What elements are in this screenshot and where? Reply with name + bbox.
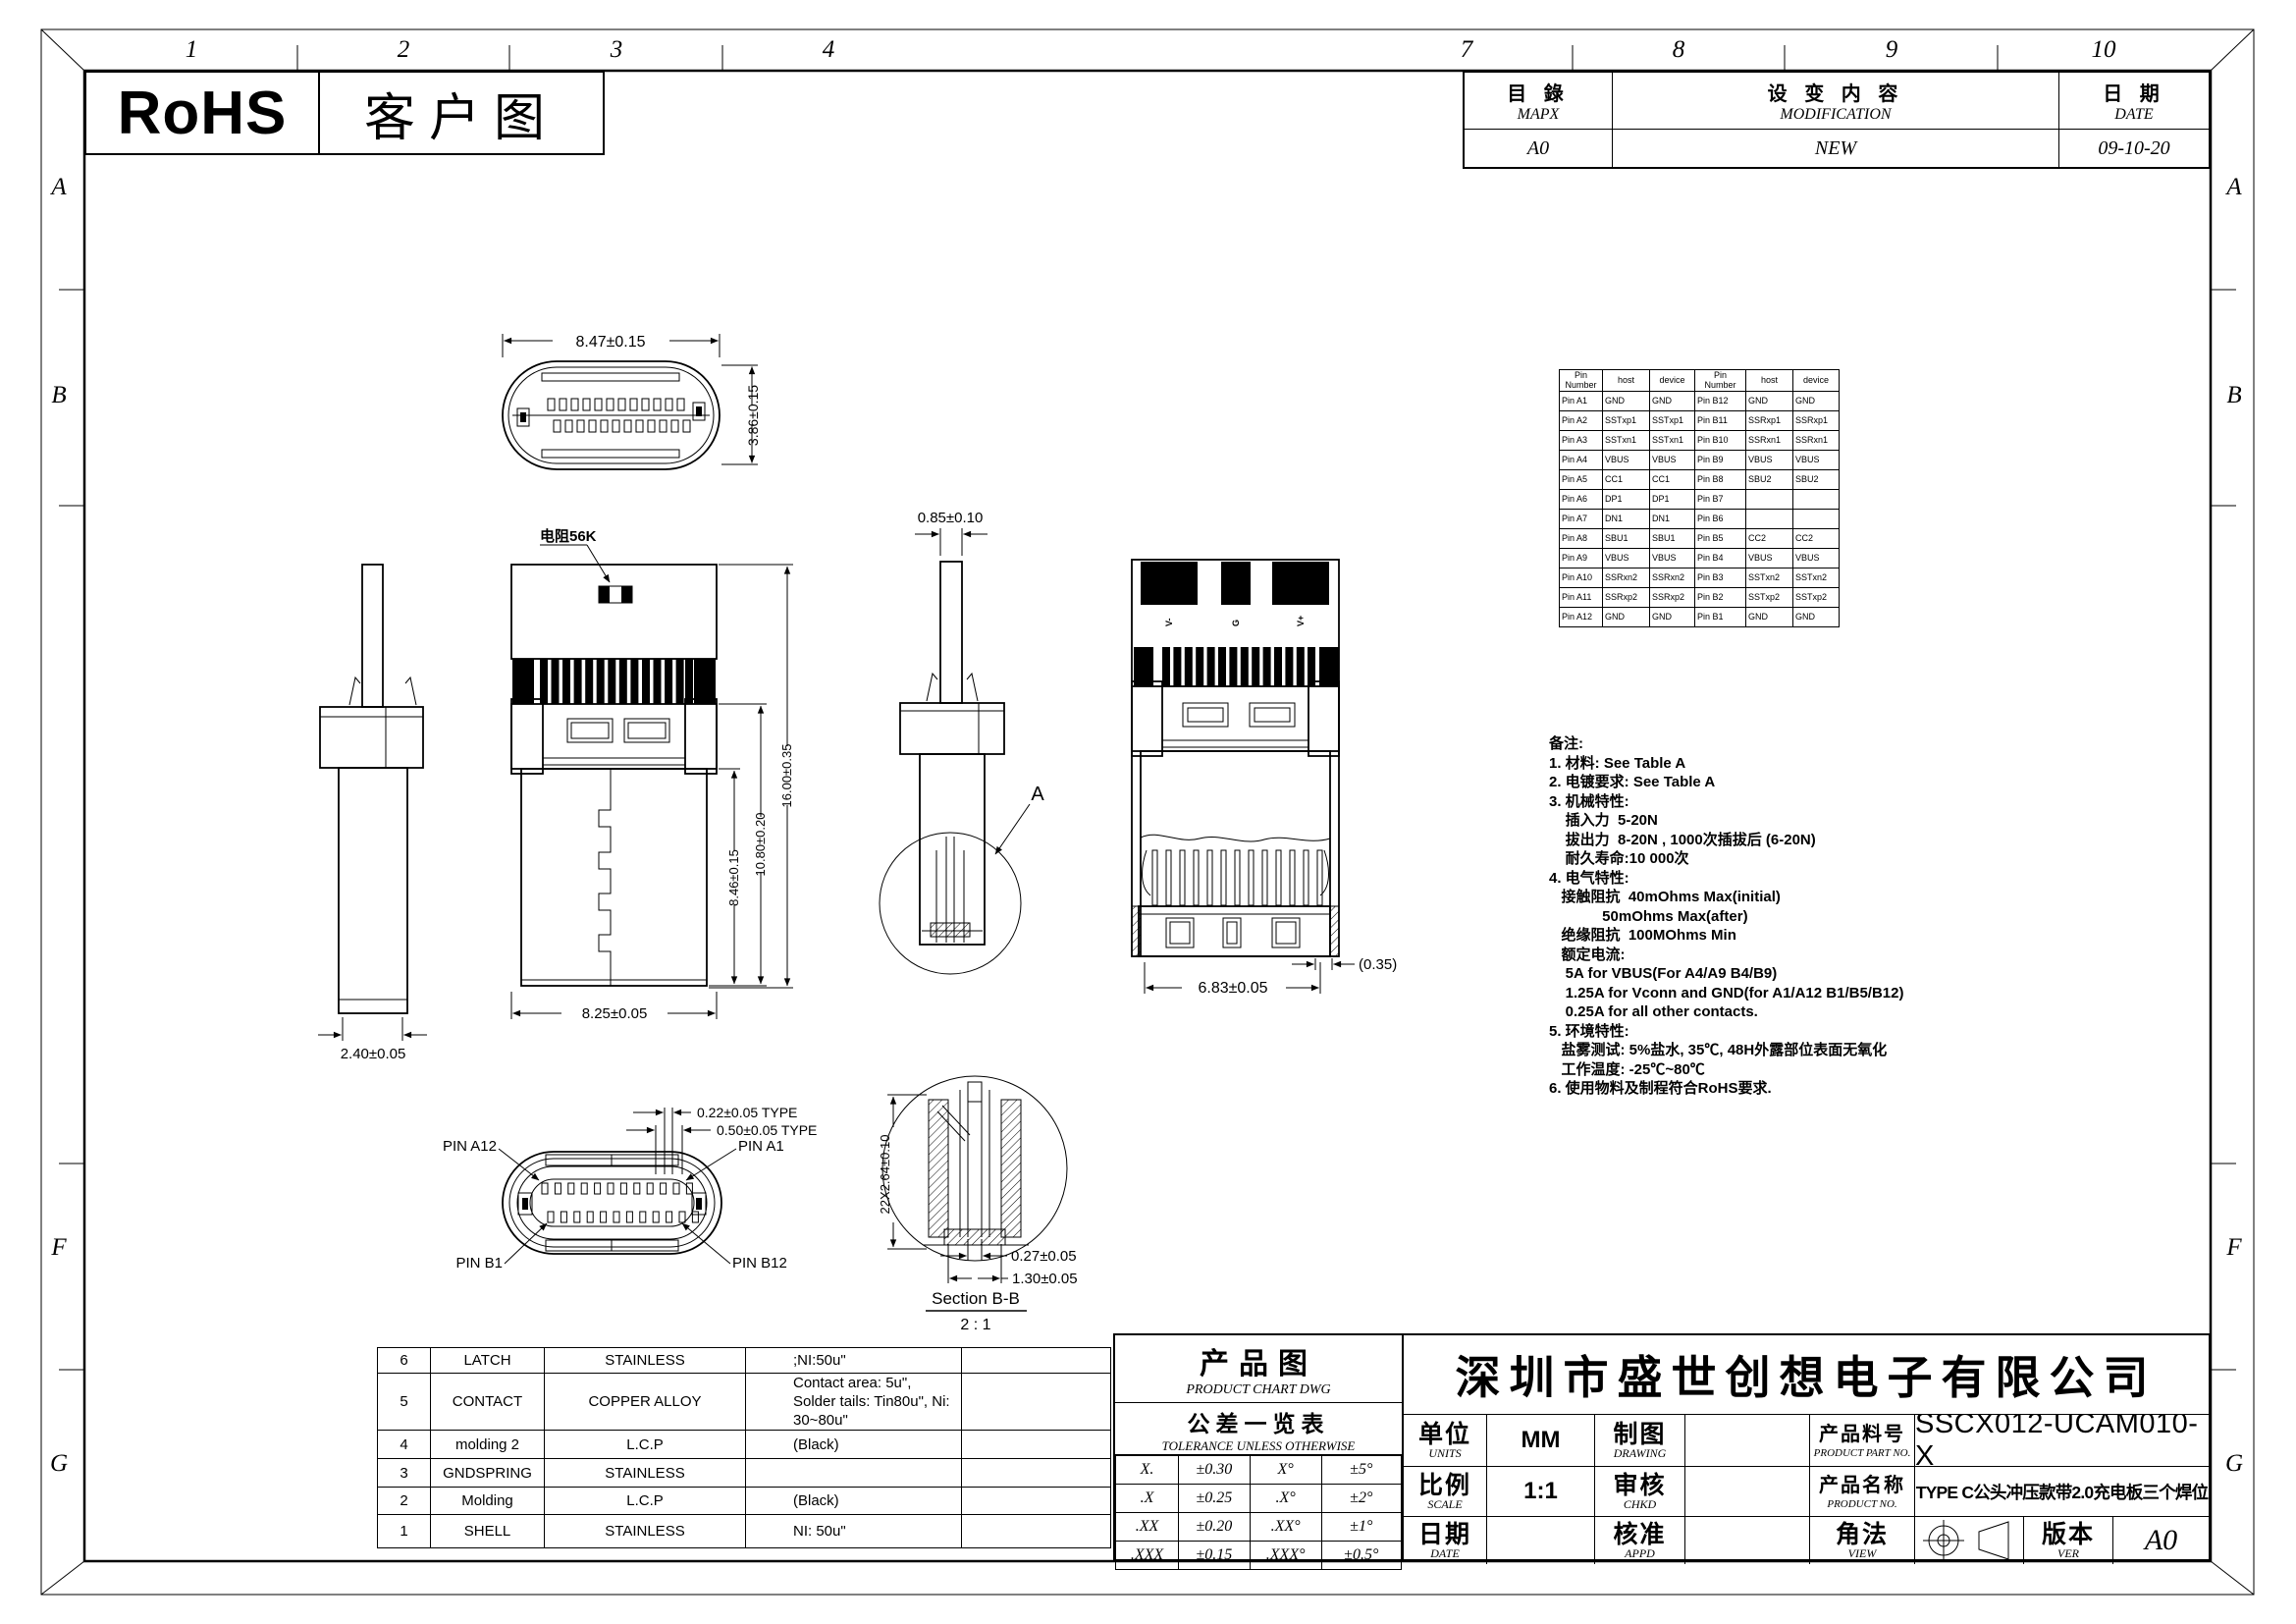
- table-cell: DN1: [1650, 510, 1695, 529]
- pin-assignment-table: Pin Number host device Pin Number host d…: [1559, 369, 1840, 627]
- table-cell: [746, 1459, 962, 1488]
- title-cn: 公差一览表: [1115, 1403, 1402, 1438]
- zone-letter: B: [43, 381, 75, 410]
- zone-letter: G: [2218, 1449, 2250, 1479]
- table-cell: Pin B1: [1695, 608, 1746, 627]
- pin-row-b: [548, 1212, 698, 1222]
- table-row: 1SHELLSTAINLESSNI: 50u": [378, 1515, 1111, 1548]
- pad-label: G: [1231, 620, 1241, 626]
- notes-block: 备注:1. 材料: See Table A2. 电镀要求: See Table …: [1549, 734, 2059, 1099]
- front-view: 电阻56K: [511, 527, 794, 1022]
- table-cell: ±0.25: [1179, 1485, 1251, 1513]
- table-cell: ±0.5°: [1321, 1542, 1401, 1570]
- table-cell: Pin A11: [1560, 588, 1603, 608]
- revision-col-mapx: 目 錄 MAPX: [1465, 73, 1613, 129]
- table-row: 5CONTACTCOPPER ALLOYContact area: 5u", S…: [378, 1374, 1111, 1431]
- label-en: PRODUCT PART NO.: [1814, 1447, 1911, 1460]
- table-cell: 3: [378, 1459, 431, 1488]
- table-cell: ;NI:50u": [746, 1348, 962, 1374]
- table-cell: SSRxp2: [1650, 588, 1695, 608]
- note-line: 接触阻抗 40mOhms Max(initial): [1549, 888, 2059, 907]
- break-line: [1141, 835, 1330, 841]
- table-cell: [962, 1459, 1111, 1488]
- table-cell: Contact area: 5u", Solder tails: Tin80u"…: [746, 1374, 962, 1431]
- third-angle-projection-icon: [1918, 1519, 2020, 1562]
- table-row: 4molding 2L.C.P(Black): [378, 1431, 1111, 1459]
- table-cell: SSTxn2: [1746, 568, 1793, 588]
- zone-number: 9: [1872, 35, 1911, 65]
- title-en: TOLERANCE UNLESS OTHERWISE: [1115, 1438, 1402, 1454]
- product-name-label: 产品名称 PRODUCT NO.: [1810, 1467, 1915, 1516]
- table-cell: SSRxn2: [1603, 568, 1650, 588]
- table-cell: SBU1: [1650, 529, 1695, 549]
- table-cell: GND: [1650, 608, 1695, 627]
- table-cell: molding 2: [431, 1431, 545, 1459]
- table-cell: 2: [378, 1488, 431, 1515]
- label-en: UNITS: [1428, 1447, 1461, 1460]
- label-en: VIEW: [1848, 1547, 1877, 1560]
- note-line: 5. 环境特性:: [1549, 1022, 2059, 1042]
- zone-letter: G: [43, 1449, 75, 1479]
- solder-pad: [1221, 562, 1251, 605]
- table-cell: [1793, 490, 1840, 510]
- pin-callout: PIN A12: [443, 1138, 497, 1155]
- table-row: 3GNDSPRINGSTAINLESS: [378, 1459, 1111, 1488]
- bom-table: 6LATCHSTAINLESS;NI:50u"5CONTACTCOPPER AL…: [377, 1347, 1111, 1548]
- note-line: 1. 材料: See Table A: [1549, 754, 2059, 774]
- zone-number: 10: [2084, 35, 2123, 65]
- table-cell: SBU2: [1793, 470, 1840, 490]
- table-cell: ±0.20: [1179, 1513, 1251, 1542]
- label-cn: 审核: [1613, 1473, 1666, 1498]
- table-cell: SSTxn1: [1650, 431, 1695, 451]
- table-cell: SSTxp1: [1603, 411, 1650, 431]
- section-bb-view: 22X2.64±0.10 0.27±0.05 1.30±0.05 Section…: [878, 1076, 1078, 1333]
- zone-letter: B: [2218, 381, 2250, 410]
- label-en: PRODUCT NO.: [1827, 1498, 1896, 1511]
- side-view-left: 2.40±0.05: [318, 565, 427, 1062]
- product-chart-title: 产品图 PRODUCT CHART DWG: [1115, 1335, 1402, 1403]
- table-cell: CC1: [1603, 470, 1650, 490]
- zone-number: 4: [809, 35, 848, 65]
- table-cell: 5: [378, 1374, 431, 1431]
- zone-letter: A: [2218, 173, 2250, 202]
- pin-row-a: [548, 399, 684, 410]
- pin-callout: PIN B12: [732, 1255, 787, 1272]
- dim-text: 0.22±0.05 TYPE: [697, 1105, 797, 1120]
- label-cn: 制图: [1613, 1422, 1666, 1447]
- revision-table: 目 錄 MAPX 设 变 内 容 MODIFICATION 日 期 DATE A…: [1463, 71, 2211, 169]
- dim-thickness: [318, 1017, 427, 1041]
- product-chart-block: 产品图 PRODUCT CHART DWG 公差一览表 TOLERANCE UN…: [1113, 1333, 1404, 1561]
- table-cell: ±0.15: [1179, 1542, 1251, 1570]
- value: MM: [1522, 1427, 1561, 1454]
- label-cn: 产品料号: [1819, 1422, 1905, 1447]
- ver-label: 版本 VER: [2024, 1517, 2113, 1564]
- table-cell: [962, 1515, 1111, 1548]
- side-view-right: 0.85±0.10 A: [880, 510, 1044, 974]
- zone-letter: F: [2218, 1233, 2250, 1263]
- zone-number: 8: [1659, 35, 1698, 65]
- view-label: 角法 VIEW: [1810, 1517, 1915, 1564]
- zone-number: 1: [172, 35, 211, 65]
- table-row: Pin A1GNDGNDPin B12GNDGND: [1560, 392, 1840, 411]
- table-cell: CC2: [1746, 529, 1793, 549]
- pin-callout: PIN B1: [455, 1255, 503, 1272]
- table-cell: GND: [1746, 608, 1793, 627]
- table-cell: STAINLESS: [545, 1348, 746, 1374]
- table-cell: VBUS: [1793, 451, 1840, 470]
- table-cell: [1746, 510, 1793, 529]
- table-cell: [1746, 490, 1793, 510]
- pad-label: V-: [1164, 618, 1174, 626]
- table-cell: Pin A10: [1560, 568, 1603, 588]
- scale-label: 比例 SCALE: [1404, 1467, 1487, 1516]
- company-name: 深圳市盛世创想电子有限公司: [1404, 1335, 2209, 1415]
- dim-text: 8.25±0.05: [582, 1005, 648, 1022]
- revision-header-row: 目 錄 MAPX 设 变 内 容 MODIFICATION 日 期 DATE: [1465, 73, 2209, 130]
- label-cn: 日 期: [2103, 78, 2165, 106]
- col-header: device: [1793, 370, 1840, 392]
- zone-number: 7: [1447, 35, 1486, 65]
- tolerance-table: X.±0.30X°±5°.X±0.25.X°±2°.XX±0.20.XX°±1°…: [1115, 1455, 1402, 1570]
- note-line: 插入力 5-20N: [1549, 811, 2059, 831]
- table-cell: 6: [378, 1348, 431, 1374]
- table-cell: Pin B4: [1695, 549, 1746, 568]
- table-cell: .XXX: [1116, 1542, 1179, 1570]
- dim-text: 1.30±0.05: [1012, 1271, 1078, 1287]
- back-view: V- G V+: [1132, 560, 1397, 997]
- table-row: Pin A2SSTxp1SSTxp1Pin B11SSRxp1SSRxp1: [1560, 411, 1840, 431]
- dim-text: 22X2.64±0.10: [878, 1135, 892, 1215]
- table-cell: SBU1: [1603, 529, 1650, 549]
- pin-table-header: Pin Number host device Pin Number host d…: [1560, 370, 1840, 392]
- dim-0-35: [1292, 958, 1355, 970]
- table-cell: GND: [1793, 392, 1840, 411]
- title-row-2: 比例 SCALE 1:1 审核 CHKD 产品名称 PRODUCT NO. TY…: [1404, 1467, 2209, 1517]
- table-row: Pin A6DP1DP1Pin B7: [1560, 490, 1840, 510]
- value: A0: [2145, 1524, 2177, 1557]
- resistor-callout: 电阻56K: [540, 527, 597, 545]
- note-line: 盐雾测试: 5%盐水, 35℃, 48H外露部位表面无氧化: [1549, 1041, 2059, 1060]
- dim-1-30: [948, 1244, 1008, 1283]
- label-en: CHKD: [1624, 1498, 1656, 1511]
- table-cell: Pin A7: [1560, 510, 1603, 529]
- label-en: DATE: [1430, 1547, 1460, 1560]
- dim-text: 8.46±0.15: [726, 849, 741, 906]
- table-cell: SSRxp2: [1603, 588, 1650, 608]
- mating-face-view: PIN A12 PIN A1 PIN B1 PIN B12 0.22±0.05 …: [443, 1105, 817, 1272]
- table-cell: DP1: [1603, 490, 1650, 510]
- table-cell: Pin B9: [1695, 451, 1746, 470]
- table-row: Pin A7DN1DN1Pin B6: [1560, 510, 1840, 529]
- table-cell: .XX°: [1250, 1513, 1321, 1542]
- projection-symbol: [1915, 1517, 2024, 1564]
- table-row: Pin A3SSTxn1SSTxn1Pin B10SSRxn1SSRxn1: [1560, 431, 1840, 451]
- revision-data-row: A0 NEW 09-10-20: [1465, 130, 2209, 167]
- table-cell: SSTxp2: [1793, 588, 1840, 608]
- table-cell: Pin B3: [1695, 568, 1746, 588]
- note-line: 额定电流:: [1549, 946, 2059, 965]
- table-cell: SSTxn1: [1603, 431, 1650, 451]
- dim-text: 3.86±0.15: [745, 385, 761, 446]
- title-cn: 产品图: [1115, 1335, 1402, 1382]
- dim-text: 2.40±0.05: [341, 1046, 406, 1062]
- pin-row-a: [542, 1183, 692, 1194]
- table-cell: Pin B12: [1695, 392, 1746, 411]
- label-cn: 目 錄: [1507, 78, 1570, 106]
- detail-circle: [880, 833, 1021, 974]
- dim-text: 0.85±0.10: [918, 510, 984, 526]
- drawing-sheet: 1 2 3 4 7 8 9 10 A B F G A B F G RoHS 客户…: [0, 0, 2296, 1624]
- revision-col-modification: 设 变 内 容 MODIFICATION: [1613, 73, 2059, 129]
- note-line: 0.25A for all other contacts.: [1549, 1002, 2059, 1022]
- table-cell: DN1: [1603, 510, 1650, 529]
- table-cell: Pin B5: [1695, 529, 1746, 549]
- table-cell: STAINLESS: [545, 1459, 746, 1488]
- table-cell: Pin B7: [1695, 490, 1746, 510]
- table-cell: Pin A1: [1560, 392, 1603, 411]
- table-cell: SSTxn2: [1793, 568, 1840, 588]
- title-row-3: 日期 DATE 核准 APPD 角法 VIEW 版本: [1404, 1517, 2209, 1564]
- contact-comb: [512, 659, 716, 704]
- table-cell: VBUS: [1746, 549, 1793, 568]
- top-face-view: 8.47±0.15 3.86±0.15: [503, 334, 761, 469]
- appd-value: [1685, 1517, 1810, 1564]
- part-no-label: 产品料号 PRODUCT PART NO.: [1810, 1415, 1915, 1466]
- note-line: 6. 使用物料及制程符合RoHS要求.: [1549, 1079, 2059, 1099]
- table-cell: SBU2: [1746, 470, 1793, 490]
- table-cell: [1793, 510, 1840, 529]
- table-cell: SSTxp1: [1650, 411, 1695, 431]
- table-cell: Pin B2: [1695, 588, 1746, 608]
- value: SSCX012-UCAM010-X: [1915, 1415, 2209, 1466]
- label-cn: 角法: [1836, 1522, 1889, 1547]
- table-cell: SSRxn1: [1793, 431, 1840, 451]
- table-cell: ±0.30: [1179, 1456, 1251, 1485]
- note-line: 3. 机械特性:: [1549, 792, 2059, 812]
- table-cell: Pin B6: [1695, 510, 1746, 529]
- table-cell: SSRxp1: [1793, 411, 1840, 431]
- part-no-value: SSCX012-UCAM010-X: [1915, 1415, 2209, 1466]
- table-cell: Pin A8: [1560, 529, 1603, 549]
- table-cell: DP1: [1650, 490, 1695, 510]
- dim-text: 16.00±0.35: [779, 744, 794, 808]
- drawing-label: 制图 DRAWING: [1595, 1415, 1685, 1466]
- label-en: MODIFICATION: [1780, 106, 1891, 124]
- label-en: VER: [2057, 1547, 2079, 1560]
- table-cell: STAINLESS: [545, 1515, 746, 1548]
- table-row: Pin A11SSRxp2SSRxp2Pin B2SSTxp2SSTxp2: [1560, 588, 1840, 608]
- table-cell: VBUS: [1746, 451, 1793, 470]
- tolerance-title: 公差一览表 TOLERANCE UNLESS OTHERWISE: [1115, 1403, 1402, 1455]
- table-cell: SSRxp1: [1746, 411, 1793, 431]
- solder-pad: [1272, 562, 1329, 605]
- table-row: Pin A12GNDGNDPin B1GNDGND: [1560, 608, 1840, 627]
- label-en: MAPX: [1518, 106, 1560, 124]
- table-cell: [962, 1348, 1111, 1374]
- table-cell: ±5°: [1321, 1456, 1401, 1485]
- label-cn: 日期: [1418, 1522, 1471, 1547]
- table-cell: VBUS: [1603, 549, 1650, 568]
- table-cell: Pin B10: [1695, 431, 1746, 451]
- label-cn: 版本: [2042, 1522, 2095, 1547]
- title-row-1: 单位 UNITS MM 制图 DRAWING 产品料号 PRODUCT PART…: [1404, 1415, 2209, 1467]
- zone-number: 3: [597, 35, 636, 65]
- table-cell: .XX: [1116, 1513, 1179, 1542]
- appd-label: 核准 APPD: [1595, 1517, 1685, 1564]
- label-en: DRAWING: [1614, 1447, 1667, 1460]
- table-cell: Pin A5: [1560, 470, 1603, 490]
- label-cn: 设 变 内 容: [1768, 78, 1904, 106]
- dim-text: 10.80±0.20: [753, 813, 768, 877]
- table-cell: VBUS: [1650, 451, 1695, 470]
- table-cell: Pin A4: [1560, 451, 1603, 470]
- label-en: DATE: [2114, 106, 2153, 124]
- note-line: 耐久寿命:10 000次: [1549, 849, 2059, 869]
- table-cell: GNDSPRING: [431, 1459, 545, 1488]
- label-cn: 产品名称: [1819, 1473, 1905, 1498]
- table-cell: Pin B8: [1695, 470, 1746, 490]
- note-line: 2. 电镀要求: See Table A: [1549, 773, 2059, 792]
- dim-text: 8.47±0.15: [575, 334, 645, 351]
- table-row: 6LATCHSTAINLESS;NI:50u": [378, 1348, 1111, 1374]
- table-cell: SHELL: [431, 1515, 545, 1548]
- note-line: 绝缘阻抗 100MOhms Min: [1549, 926, 2059, 946]
- col-header: host: [1603, 370, 1650, 392]
- mold-parting-line: [599, 769, 611, 986]
- table-cell: GND: [1603, 392, 1650, 411]
- label-cn: 核准: [1613, 1522, 1666, 1547]
- table-cell: Molding: [431, 1488, 545, 1515]
- table-cell: SSTxp2: [1746, 588, 1793, 608]
- dim-22x264: [887, 1095, 927, 1249]
- contact-comb: [1134, 647, 1339, 686]
- col-header: Pin Number: [1695, 370, 1746, 392]
- drawing-value: [1685, 1415, 1810, 1466]
- zone-letter: A: [43, 173, 75, 202]
- table-cell: GND: [1746, 392, 1793, 411]
- table-row: Pin A4VBUSVBUSPin B9VBUSVBUS: [1560, 451, 1840, 470]
- date-value: [1487, 1517, 1595, 1564]
- label-cn: 单位: [1418, 1422, 1471, 1447]
- table-cell: CC1: [1650, 470, 1695, 490]
- inner-comb: [1142, 850, 1328, 905]
- table-cell: GND: [1650, 392, 1695, 411]
- units-value: MM: [1487, 1415, 1595, 1466]
- zone-number: 2: [384, 35, 423, 65]
- note-line: 1.25A for Vconn and GND(for A1/A12 B1/B5…: [1549, 984, 2059, 1003]
- table-cell: Pin A12: [1560, 608, 1603, 627]
- label-en: SCALE: [1427, 1498, 1462, 1511]
- table-cell: L.C.P: [545, 1431, 746, 1459]
- units-label: 单位 UNITS: [1404, 1415, 1487, 1466]
- col-header: Pin Number: [1560, 370, 1603, 392]
- table-cell: X.: [1116, 1456, 1179, 1485]
- customer-drawing-title: 客户图: [320, 71, 605, 155]
- table-cell: ±1°: [1321, 1513, 1401, 1542]
- table-cell: L.C.P: [545, 1488, 746, 1515]
- value: TYPE C公头冲压款带2.0充电板三个焊位: [1916, 1480, 2208, 1504]
- scale-value: 1:1: [1487, 1467, 1595, 1516]
- table-cell: .X: [1116, 1485, 1179, 1513]
- section-title: Section B-B: [932, 1289, 1020, 1308]
- detail-label: A: [1031, 784, 1044, 805]
- table-cell: (Black): [746, 1488, 962, 1515]
- table-row: Pin A8SBU1SBU1Pin B5CC2CC2: [1560, 529, 1840, 549]
- table-cell: VBUS: [1603, 451, 1650, 470]
- table-row: .XXX±0.15.XXX°±0.5°: [1116, 1542, 1402, 1570]
- table-cell: (Black): [746, 1431, 962, 1459]
- table-row: .XX±0.20.XX°±1°: [1116, 1513, 1402, 1542]
- dim-text: (0.35): [1359, 956, 1397, 973]
- dim-0-85: [915, 528, 988, 556]
- table-cell: .X°: [1250, 1485, 1321, 1513]
- pin-callout: PIN A1: [738, 1138, 784, 1155]
- table-cell: COPPER ALLOY: [545, 1374, 746, 1431]
- label-en: APPD: [1625, 1547, 1655, 1560]
- table-row: .X±0.25.X°±2°: [1116, 1485, 1402, 1513]
- col-header: device: [1650, 370, 1695, 392]
- col-header: host: [1746, 370, 1793, 392]
- product-name-value: TYPE C公头冲压款带2.0充电板三个焊位: [1915, 1467, 2209, 1516]
- table-cell: [962, 1431, 1111, 1459]
- revision-modification-value: NEW: [1613, 130, 2059, 167]
- title-en: PRODUCT CHART DWG: [1115, 1382, 1402, 1398]
- table-row: Pin A9VBUSVBUSPin B4VBUSVBUS: [1560, 549, 1840, 568]
- table-cell: Pin A3: [1560, 431, 1603, 451]
- note-line: 备注:: [1549, 734, 2059, 754]
- label-cn: 比例: [1418, 1473, 1471, 1498]
- table-cell: SSRxn2: [1650, 568, 1695, 588]
- pad-label: V+: [1296, 616, 1306, 626]
- pin-row-b: [554, 420, 690, 432]
- solder-pad: [1141, 562, 1198, 605]
- chkd-value: [1685, 1467, 1810, 1516]
- table-row: X.±0.30X°±5°: [1116, 1456, 1402, 1485]
- drawing-views: 8.47±0.15 3.86±0.15 2.40±0.05: [294, 314, 1423, 1355]
- note-line: 50mOhms Max(after): [1549, 907, 2059, 927]
- value: 1:1: [1523, 1478, 1558, 1505]
- table-cell: 1: [378, 1515, 431, 1548]
- note-line: 5A for VBUS(For A4/A9 B4/B9): [1549, 964, 2059, 984]
- table-cell: [962, 1488, 1111, 1515]
- revision-mapx-value: A0: [1465, 130, 1613, 167]
- table-row: Pin A10SSRxn2SSRxn2Pin B3SSTxn2SSTxn2: [1560, 568, 1840, 588]
- table-cell: CC2: [1793, 529, 1840, 549]
- table-cell: 4: [378, 1431, 431, 1459]
- table-cell: NI: 50u": [746, 1515, 962, 1548]
- note-line: 工作温度: -25℃~80℃: [1549, 1060, 2059, 1080]
- table-row: 2MoldingL.C.P(Black): [378, 1488, 1111, 1515]
- revision-col-date: 日 期 DATE: [2059, 73, 2209, 129]
- table-cell: Pin A2: [1560, 411, 1603, 431]
- table-cell: LATCH: [431, 1348, 545, 1374]
- zone-letter: F: [43, 1233, 75, 1263]
- ver-value: A0: [2113, 1517, 2209, 1564]
- dim-text: 0.27±0.05: [1011, 1248, 1077, 1265]
- table-cell: GND: [1603, 608, 1650, 627]
- dim-text: 0.50±0.05 TYPE: [717, 1122, 817, 1138]
- table-cell: SSRxn1: [1746, 431, 1793, 451]
- table-cell: [962, 1374, 1111, 1431]
- table-row: Pin A5CC1CC1Pin B8SBU2SBU2: [1560, 470, 1840, 490]
- table-cell: GND: [1793, 608, 1840, 627]
- note-line: 4. 电气特性:: [1549, 869, 2059, 889]
- rohs-badge: RoHS: [84, 71, 320, 155]
- table-cell: Pin A6: [1560, 490, 1603, 510]
- table-cell: .XXX°: [1250, 1542, 1321, 1570]
